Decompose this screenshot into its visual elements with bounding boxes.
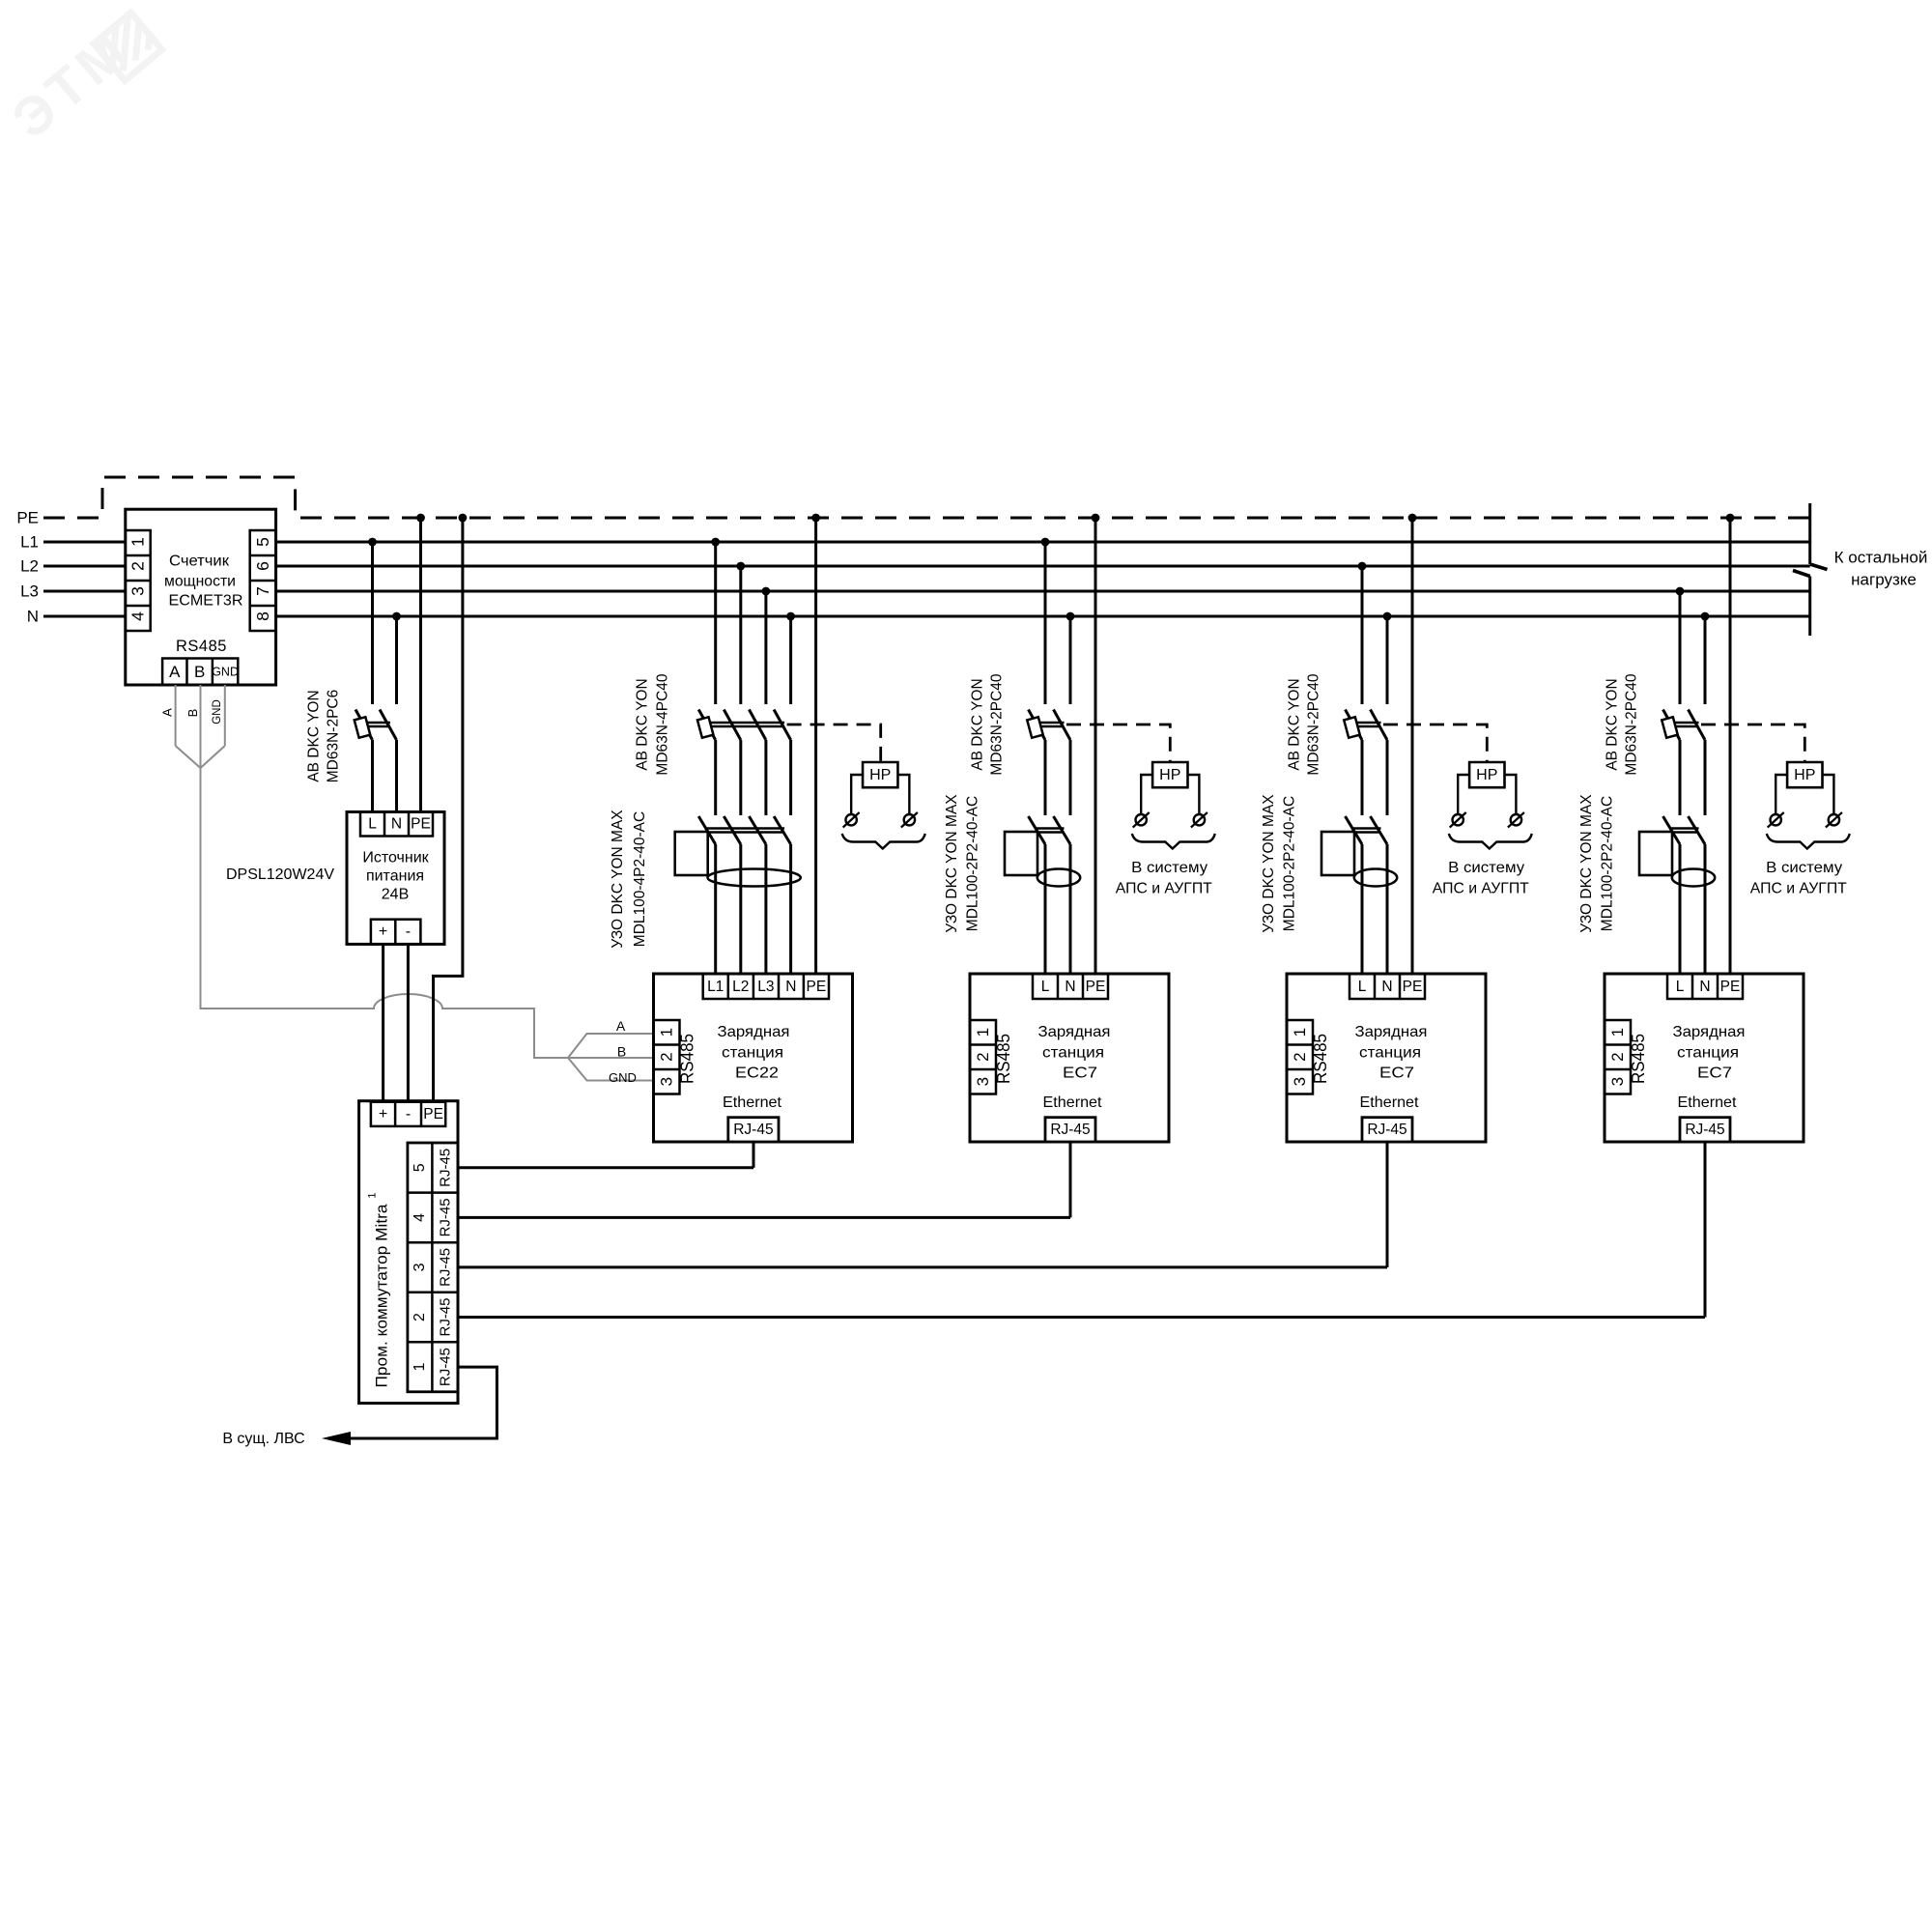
svg-text:Зарядная: Зарядная <box>1673 1024 1746 1040</box>
svg-text:N: N <box>1699 979 1710 995</box>
svg-text:EC22: EC22 <box>735 1065 779 1082</box>
svg-text:GND: GND <box>212 699 223 724</box>
svg-text:EC7: EC7 <box>1697 1065 1732 1082</box>
svg-text:RS485: RS485 <box>1629 1034 1648 1084</box>
svg-text:2: 2 <box>1608 1052 1627 1061</box>
svg-text:EC7: EC7 <box>1379 1065 1414 1082</box>
svg-text:L: L <box>1676 979 1685 995</box>
svg-text:АВ DKC YON: АВ DKC YON <box>1287 678 1303 770</box>
svg-text:нагрузке: нагрузке <box>1851 571 1917 589</box>
svg-text:GND: GND <box>212 666 239 679</box>
svg-text:A: A <box>169 663 181 681</box>
svg-text:RJ-45: RJ-45 <box>437 1198 453 1236</box>
svg-text:3: 3 <box>658 1077 676 1086</box>
svg-text:N: N <box>27 608 39 626</box>
svg-text:8: 8 <box>253 611 272 621</box>
svg-text:RJ-45: RJ-45 <box>437 1149 453 1187</box>
svg-text:MDL100-4P2-40-AC: MDL100-4P2-40-AC <box>632 811 648 947</box>
svg-text:3: 3 <box>1608 1077 1627 1086</box>
svg-text:АПС и АУГПТ: АПС и АУГПТ <box>1750 881 1847 897</box>
svg-text:Зарядная: Зарядная <box>1355 1024 1428 1040</box>
svg-text:НР: НР <box>1476 767 1497 783</box>
svg-text:PE: PE <box>1720 979 1741 995</box>
svg-text:PE: PE <box>16 509 39 527</box>
svg-text:N: N <box>391 816 402 833</box>
svg-text:7: 7 <box>253 586 272 596</box>
svg-text:RJ-45: RJ-45 <box>437 1297 453 1336</box>
svg-text:Ethernet: Ethernet <box>1043 1094 1103 1111</box>
svg-text:+: + <box>379 923 387 940</box>
svg-text:4: 4 <box>128 611 148 621</box>
svg-text:Зарядная: Зарядная <box>718 1024 790 1040</box>
svg-text:1: 1 <box>1291 1028 1309 1037</box>
svg-text:НР: НР <box>869 767 891 783</box>
svg-text:B: B <box>185 709 200 718</box>
svg-text:L: L <box>1358 979 1367 995</box>
svg-text:Пром. коммутатор Mitra: Пром. коммутатор Mitra <box>373 1204 391 1388</box>
svg-text:B: B <box>617 1044 626 1060</box>
svg-text:N: N <box>1381 979 1392 995</box>
svg-text:PE: PE <box>1403 979 1423 995</box>
svg-text:станция: станция <box>1359 1045 1421 1062</box>
svg-text:АПС и АУГПТ: АПС и АУГПТ <box>1433 881 1529 897</box>
svg-text:Ethernet: Ethernet <box>1360 1094 1420 1111</box>
svg-text:Ethernet: Ethernet <box>723 1094 782 1111</box>
svg-text:К остальной: К остальной <box>1834 549 1928 567</box>
svg-text:3: 3 <box>128 586 148 596</box>
svg-text:3: 3 <box>412 1263 428 1271</box>
svg-text:ECMET3R: ECMET3R <box>169 593 243 610</box>
svg-text:MD63N-2PC6: MD63N-2PC6 <box>326 690 342 782</box>
svg-text:DPSL120W24V: DPSL120W24V <box>226 867 334 883</box>
svg-text:2: 2 <box>1291 1052 1309 1061</box>
svg-text:PE: PE <box>423 1106 443 1122</box>
svg-text:питания: питания <box>366 868 424 885</box>
svg-text:УЗО DKC YON MAX: УЗО DKC YON MAX <box>1261 794 1277 933</box>
svg-text:НР: НР <box>1159 767 1180 783</box>
svg-text:L1: L1 <box>20 533 39 552</box>
svg-text:АВ DKC YON: АВ DKC YON <box>970 678 986 770</box>
svg-text:MDL100-2P2-40-AC: MDL100-2P2-40-AC <box>965 796 981 931</box>
svg-text:УЗО DKC YON MAX: УЗО DKC YON MAX <box>944 794 960 933</box>
svg-text:1: 1 <box>658 1028 676 1037</box>
svg-text:RS485: RS485 <box>176 638 227 655</box>
svg-text:В систему: В систему <box>1766 860 1842 876</box>
svg-text:станция: станция <box>722 1045 783 1062</box>
svg-text:3: 3 <box>1291 1077 1309 1086</box>
svg-text:1: 1 <box>1608 1028 1627 1037</box>
svg-text:мощности: мощности <box>164 574 236 590</box>
svg-text:GND: GND <box>609 1070 637 1085</box>
svg-text:RS485: RS485 <box>678 1034 697 1084</box>
svg-text:4: 4 <box>412 1213 428 1222</box>
svg-text:RJ-45: RJ-45 <box>733 1122 773 1138</box>
svg-text:RS485: RS485 <box>1311 1034 1330 1084</box>
svg-text:L1: L1 <box>707 979 724 995</box>
svg-text:В сущ. ЛВС: В сущ. ЛВС <box>222 1431 304 1447</box>
svg-text:MD63N-4PC40: MD63N-4PC40 <box>655 673 671 775</box>
svg-text:станция: станция <box>1042 1045 1104 1062</box>
svg-text:АВ DKC YON: АВ DKC YON <box>306 690 323 781</box>
svg-text:станция: станция <box>1677 1045 1739 1062</box>
svg-text:-: - <box>406 1106 411 1122</box>
svg-text:RJ-45: RJ-45 <box>437 1248 453 1287</box>
svg-text:5: 5 <box>412 1163 428 1172</box>
svg-text:N: N <box>785 979 796 995</box>
svg-text:1: 1 <box>128 537 148 547</box>
svg-text:PE: PE <box>411 816 431 833</box>
svg-text:АВ DKC YON: АВ DKC YON <box>635 678 651 770</box>
svg-text:НР: НР <box>1794 767 1815 783</box>
svg-text:RJ-45: RJ-45 <box>1685 1122 1724 1138</box>
svg-text:RS485: RS485 <box>994 1034 1013 1084</box>
svg-text:RJ-45: RJ-45 <box>437 1348 453 1386</box>
svg-text:УЗО DKC YON MAX: УЗО DKC YON MAX <box>1578 794 1595 933</box>
svg-text:УЗО DKC YON MAX: УЗО DKC YON MAX <box>610 810 626 949</box>
svg-text:L: L <box>368 816 377 833</box>
svg-text:RJ-45: RJ-45 <box>1050 1122 1090 1138</box>
svg-text:L3: L3 <box>757 979 774 995</box>
svg-text:A: A <box>160 708 175 717</box>
svg-text:Зарядная: Зарядная <box>1038 1024 1111 1040</box>
svg-text:L3: L3 <box>20 582 39 601</box>
svg-text:PE: PE <box>1086 979 1106 995</box>
svg-text:В систему: В систему <box>1448 860 1524 876</box>
svg-text:5: 5 <box>253 537 272 547</box>
svg-text:1: 1 <box>974 1028 992 1037</box>
svg-text:Ethernet: Ethernet <box>1678 1094 1738 1111</box>
svg-text:L2: L2 <box>732 979 749 995</box>
svg-text:MDL100-2P2-40-AC: MDL100-2P2-40-AC <box>1282 796 1298 931</box>
svg-text:2: 2 <box>128 561 148 571</box>
svg-text:Счетчик: Счетчик <box>169 554 229 570</box>
svg-text:3: 3 <box>974 1077 992 1086</box>
svg-text:1: 1 <box>367 1192 379 1198</box>
svg-text:MD63N-2PC40: MD63N-2PC40 <box>1306 673 1322 775</box>
svg-text:6: 6 <box>253 561 272 571</box>
svg-text:Источник: Источник <box>362 850 429 867</box>
svg-text:L2: L2 <box>20 557 39 576</box>
svg-text:2: 2 <box>658 1052 676 1061</box>
svg-text:24В: 24В <box>382 887 409 903</box>
svg-text:-: - <box>406 923 411 940</box>
svg-text:АПС и АУГПТ: АПС и АУГПТ <box>1116 881 1212 897</box>
svg-text:B: B <box>194 663 205 681</box>
svg-text:АВ DKC YON: АВ DKC YON <box>1605 678 1621 770</box>
svg-text:2: 2 <box>974 1052 992 1061</box>
svg-text:EC7: EC7 <box>1063 1065 1097 1082</box>
svg-text:В систему: В систему <box>1131 860 1207 876</box>
svg-text:+: + <box>379 1106 387 1122</box>
svg-text:MD63N-2PC40: MD63N-2PC40 <box>989 673 1006 775</box>
svg-text:MD63N-2PC40: MD63N-2PC40 <box>1624 673 1640 775</box>
svg-text:1: 1 <box>412 1363 428 1372</box>
svg-text:A: A <box>616 1018 626 1034</box>
svg-text:PE: PE <box>807 979 827 995</box>
svg-text:2: 2 <box>412 1313 428 1321</box>
svg-text:RJ-45: RJ-45 <box>1367 1122 1406 1138</box>
svg-text:N: N <box>1065 979 1075 995</box>
svg-text:MDL100-2P2-40-AC: MDL100-2P2-40-AC <box>1600 796 1616 931</box>
svg-text:L: L <box>1041 979 1050 995</box>
